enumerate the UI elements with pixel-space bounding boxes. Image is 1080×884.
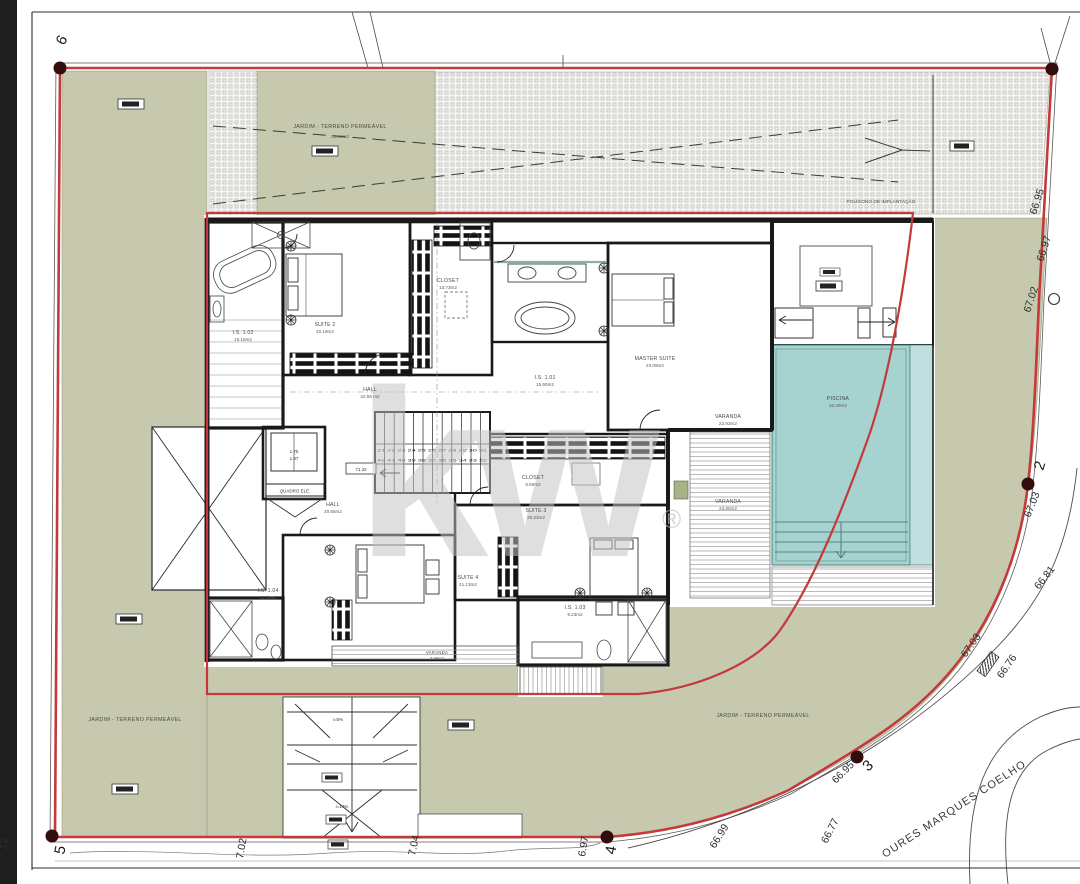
room-label: VARANDA <box>715 414 741 420</box>
room-area: 7.98m2 <box>430 656 445 661</box>
room-label: SUITE 3 <box>525 508 546 514</box>
elevator-depth: 1.97 <box>290 456 299 461</box>
wardrobe-closet1-top <box>434 226 492 246</box>
tag-smudge <box>823 270 835 274</box>
varanda-bottom-deck <box>332 646 518 666</box>
room-label: PISCINA <box>827 396 849 402</box>
marker-dot-2 <box>1022 478 1035 491</box>
room-label: I.S. 1.02 <box>232 330 253 336</box>
plant-icon <box>599 326 609 336</box>
ramp-slope-2: i=14% <box>336 804 349 809</box>
room-area: 9.60m2 <box>525 482 541 487</box>
room-label: I.S. 1.01 <box>534 375 555 381</box>
garden-top-strip <box>257 71 435 215</box>
room-area: 22.56 m2 <box>360 394 380 399</box>
garden-area-top: 22.98m2 <box>331 134 349 139</box>
gravel-walkway-strip <box>209 71 257 218</box>
pool-side-walk <box>910 345 933 565</box>
room-area: 23.09m2 <box>646 363 664 368</box>
plant-icon <box>286 315 296 325</box>
pool-deck <box>772 567 933 605</box>
wardrobe-suite4 <box>332 600 352 640</box>
room-area: 22.93m2 <box>719 421 737 426</box>
implantation-polygon-label: POLÍGONO DE IMPLANTAÇÃO <box>847 198 916 205</box>
room-label: SUITE 4 <box>457 575 478 581</box>
tag-smudge <box>820 284 836 289</box>
garden-label-bottom-right: JARDIM - TERRENO PERMEÁVEL <box>716 712 809 719</box>
room-area: 20.55m2 <box>324 509 342 514</box>
garden-label-bottom-left: JARDIM - TERRENO PERMEÁVEL <box>88 716 181 723</box>
room-label: I.S. 1.03 <box>564 605 585 611</box>
marker-dot-6 <box>54 62 67 75</box>
room-label: CLOSET <box>437 278 460 284</box>
room-label: I.S. 1.04 <box>257 588 278 594</box>
elevator-width: 1.75 <box>290 449 299 454</box>
pool-wing <box>772 218 933 605</box>
garden-label-top: JARDIM - TERRENO PERMEÁVEL <box>293 123 386 130</box>
room-area: 13.73m2 <box>439 285 457 290</box>
site-plan-sheet: 21 22 23 24 25 26 27 28 29 30 31 42 41 4… <box>0 0 1080 884</box>
varanda-glass-panel <box>674 481 688 499</box>
electrical-board-label: QUADRO ELE. <box>280 489 311 494</box>
room-area: 9.23m2 <box>567 612 583 617</box>
room-label: HALL <box>363 387 377 393</box>
registered-mark: ® <box>662 504 681 534</box>
room-area: 15.90m2 <box>536 382 554 387</box>
marker-dot-4 <box>601 831 614 844</box>
deck-below-bath <box>520 667 602 694</box>
kw-watermark: kw <box>356 342 660 607</box>
marker-dot-5 <box>46 830 59 843</box>
room-label: SUITE 2 <box>314 322 335 328</box>
room-label: MASTER SUITE <box>635 356 676 362</box>
plan-drawing: 21 22 23 24 25 26 27 28 29 30 31 42 41 4… <box>0 0 1080 884</box>
plant-icon <box>599 263 609 273</box>
room-area: 25.33m2 <box>527 515 545 520</box>
room-area: 16.15m2 <box>234 337 252 342</box>
varanda-right-deck <box>690 432 770 598</box>
scan-edge-bar <box>0 0 17 884</box>
room-area: 32.29m2 <box>829 403 847 408</box>
room-area: 23.80m2 <box>719 506 737 511</box>
ramp-slope-1: i=5% <box>333 717 343 722</box>
room-label: CLOSET <box>522 475 545 481</box>
room-area: 21.13m2 <box>459 582 477 587</box>
room-label: VARANDA <box>426 650 448 655</box>
marker-dot-top-right <box>1046 63 1059 76</box>
room-area: 20.19m2 <box>316 329 334 334</box>
plant-icon <box>325 545 335 555</box>
room-label: HALL <box>326 502 340 508</box>
room-area: 12.26m2 <box>259 595 277 600</box>
room-label: VARANDA <box>715 499 741 505</box>
